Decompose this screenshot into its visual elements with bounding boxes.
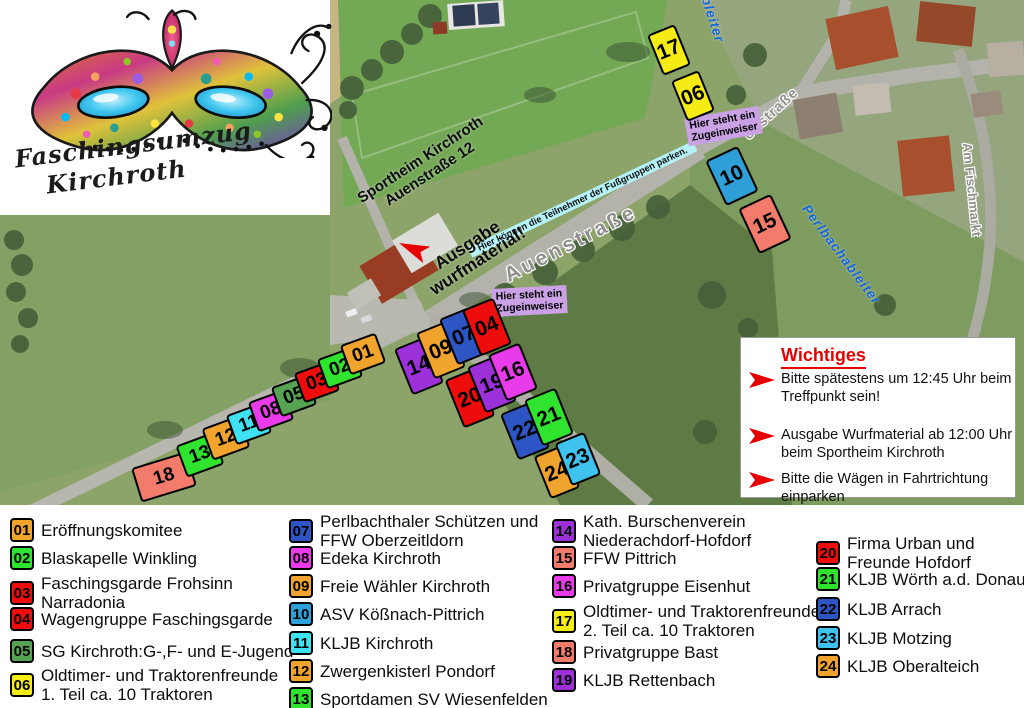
- legend-item-14: 14Kath. BurschenvereinNiederachdorf-Hofd…: [552, 512, 751, 550]
- important-item-text: Ausgabe Wurfmaterial ab 12:00 Uhr beim S…: [781, 426, 1013, 462]
- zugeinweiser-line2: Zugeinweiser: [496, 299, 564, 314]
- legend-label-13: Sportdamen SV Wiesenfelden: [320, 690, 548, 708]
- legend-color-chip-16: 16: [552, 574, 576, 598]
- legend-color-chip-12: 12: [289, 659, 313, 683]
- legend-color-chip-01: 01: [10, 518, 34, 542]
- legend-label-01: Eröffnungskomitee: [41, 521, 182, 540]
- legend-label-17: Oldtimer- und Traktorenfreunde2. Teil ca…: [583, 602, 820, 640]
- legend-item-16: 16Privatgruppe Eisenhut: [552, 574, 750, 598]
- legend-item-18: 18Privatgruppe Bast: [552, 640, 718, 664]
- legend-label-05: SG Kirchroth:G-,F- und E-Jugend: [41, 642, 293, 661]
- legend-color-chip-06: 06: [10, 673, 34, 697]
- legend-label-08: Edeka Kirchroth: [320, 549, 441, 568]
- legend-item-02: 02Blaskapelle Winkling: [10, 546, 197, 570]
- legend-color-chip-20: 20: [816, 541, 840, 565]
- legend-item-01: 01Eröffnungskomitee: [10, 518, 182, 542]
- legend-item-23: 23KLJB Motzing: [816, 626, 952, 650]
- legend-item-05: 05SG Kirchroth:G-,F- und E-Jugend: [10, 639, 293, 663]
- legend-color-chip-03: 03: [10, 581, 34, 605]
- parade-flyer: Hier können die Teilnehmer der Fußgruppe…: [0, 0, 1024, 708]
- legend-label-15: FFW Pittrich: [583, 549, 677, 568]
- legend-label-19: KLJB Rettenbach: [583, 671, 715, 690]
- legend-label-24: KLJB Oberalteich: [847, 657, 979, 676]
- legend-label-07: Perlbachthaler Schützen undFFW Oberzeitl…: [320, 512, 538, 550]
- legend-color-chip-22: 22: [816, 597, 840, 621]
- legend-item-08: 08Edeka Kirchroth: [289, 546, 441, 570]
- legend-color-chip-09: 09: [289, 574, 313, 598]
- legend-color-chip-07: 07: [289, 519, 313, 543]
- important-item-text: Bitte spätestens um 12:45 Uhr beim Treff…: [781, 370, 1013, 406]
- legend-label-12: Zwergenkisterl Pondorf: [320, 662, 495, 681]
- legend-color-chip-02: 02: [10, 546, 34, 570]
- legend-color-chip-05: 05: [10, 639, 34, 663]
- legend-label-22: KLJB Arrach: [847, 600, 942, 619]
- legend-color-chip-11: 11: [289, 631, 313, 655]
- legend-item-06: 06Oldtimer- und Traktorenfreunde1. Teil …: [10, 666, 278, 704]
- legend-color-chip-15: 15: [552, 546, 576, 570]
- zugeinweiser-note-south: Hier steht ein Zugeinweiser: [491, 285, 567, 317]
- legend-item-07: 07Perlbachthaler Schützen undFFW Oberzei…: [289, 512, 538, 550]
- legend-label-04: Wagengruppe Faschingsgarde: [41, 610, 273, 629]
- important-title: Wichtiges: [781, 345, 866, 369]
- legend-item-19: 19KLJB Rettenbach: [552, 668, 715, 692]
- legend-item-09: 09Freie Wähler Kirchroth: [289, 574, 490, 598]
- legend-item-22: 22KLJB Arrach: [816, 597, 942, 621]
- legend-label-23: KLJB Motzing: [847, 629, 952, 648]
- legend-item-24: 24KLJB Oberalteich: [816, 654, 979, 678]
- legend-item-21: 21KLJB Wörth a.d. Donau: [816, 567, 1024, 591]
- red-arrow-icon: [749, 472, 775, 488]
- important-item-3: Bitte die Wägen in Fahrtrichtung einpark…: [749, 470, 1013, 506]
- legend-color-chip-19: 19: [552, 668, 576, 692]
- legend-label-10: ASV Kößnach-Pittrich: [320, 605, 484, 624]
- legend-item-15: 15FFW Pittrich: [552, 546, 677, 570]
- legend-label-02: Blaskapelle Winkling: [41, 549, 197, 568]
- legend: 01Eröffnungskomitee02Blaskapelle Winklin…: [0, 505, 1024, 708]
- legend-color-chip-24: 24: [816, 654, 840, 678]
- logo-panel: Faschingsumzug Kirchroth: [0, 0, 330, 215]
- legend-color-chip-10: 10: [289, 602, 313, 626]
- legend-item-10: 10ASV Kößnach-Pittrich: [289, 602, 484, 626]
- legend-color-chip-23: 23: [816, 626, 840, 650]
- legend-label-11: KLJB Kirchroth: [320, 634, 433, 653]
- important-item-text: Bitte die Wägen in Fahrtrichtung einpark…: [781, 470, 1013, 506]
- red-arrow-icon: [749, 372, 775, 388]
- legend-item-11: 11KLJB Kirchroth: [289, 631, 433, 655]
- legend-item-04: 04Wagengruppe Faschingsgarde: [10, 607, 273, 631]
- legend-color-chip-04: 04: [10, 607, 34, 631]
- important-item-2: Ausgabe Wurfmaterial ab 12:00 Uhr beim S…: [749, 426, 1013, 462]
- legend-color-chip-08: 08: [289, 546, 313, 570]
- legend-item-12: 12Zwergenkisterl Pondorf: [289, 659, 495, 683]
- legend-label-16: Privatgruppe Eisenhut: [583, 577, 750, 596]
- legend-label-14: Kath. BurschenvereinNiederachdorf-Hofdor…: [583, 512, 751, 550]
- legend-item-13: 13Sportdamen SV Wiesenfelden: [289, 687, 548, 708]
- legend-label-06: Oldtimer- und Traktorenfreunde1. Teil ca…: [41, 666, 278, 704]
- legend-label-18: Privatgruppe Bast: [583, 643, 718, 662]
- legend-color-chip-18: 18: [552, 640, 576, 664]
- legend-color-chip-13: 13: [289, 687, 313, 708]
- legend-color-chip-17: 17: [552, 609, 576, 633]
- legend-label-09: Freie Wähler Kirchroth: [320, 577, 490, 596]
- legend-item-17: 17Oldtimer- und Traktorenfreunde2. Teil …: [552, 602, 820, 640]
- legend-color-chip-21: 21: [816, 567, 840, 591]
- important-item-1: Bitte spätestens um 12:45 Uhr beim Treff…: [749, 370, 1013, 406]
- important-box: Wichtiges Bitte spätestens um 12:45 Uhr …: [740, 337, 1016, 498]
- red-arrow-icon: [749, 428, 775, 444]
- legend-label-21: KLJB Wörth a.d. Donau: [847, 570, 1024, 589]
- legend-color-chip-14: 14: [552, 519, 576, 543]
